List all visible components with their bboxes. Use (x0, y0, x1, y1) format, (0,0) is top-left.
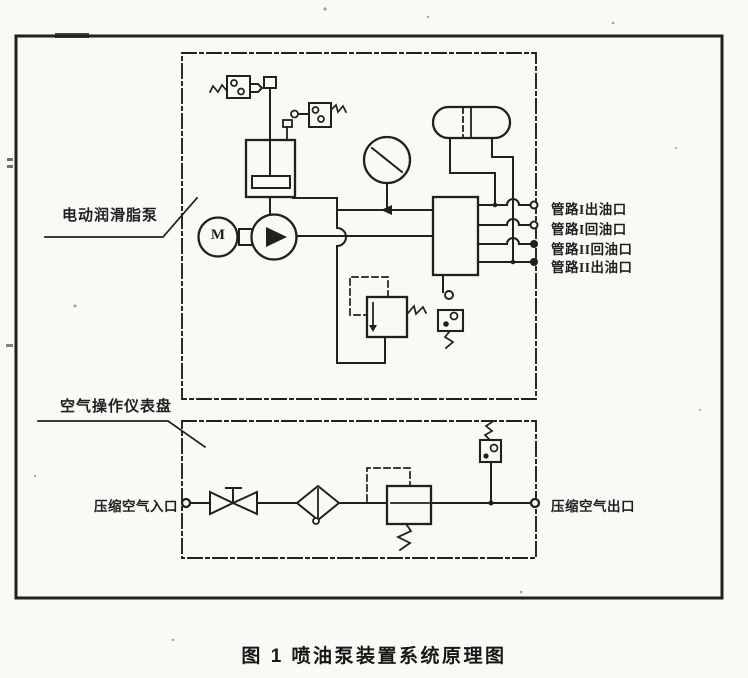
spring-icon (331, 105, 346, 112)
accumulator-line-left (450, 138, 495, 205)
shutoff-valve (210, 488, 257, 514)
port-label-line1-out: 管路I出油口 (551, 198, 627, 218)
air-outlet-port (531, 499, 539, 507)
air-inlet-label: 压缩空气入口 (90, 495, 178, 515)
scan-mark (55, 33, 89, 38)
pressure-gauge (364, 137, 410, 210)
air-panel-label: 空气操作仪表盘 (60, 395, 172, 416)
pipeline-port-lines (478, 199, 538, 266)
air-outlet-label: 压缩空气出口 (551, 495, 635, 515)
reservoir-flag (283, 120, 292, 140)
spring-icon (485, 422, 492, 440)
grease-pump-unit-label: 电动润滑脂泵 (62, 204, 158, 225)
port-circle-2 (531, 222, 538, 229)
schematic-linework (0, 0, 748, 678)
port-label-line2-out: 管路II出油口 (551, 256, 633, 276)
motor-letter: M (208, 227, 228, 244)
switch-plunger (250, 84, 262, 92)
pressure-switch-air (480, 422, 501, 462)
pressure-regulator (367, 468, 431, 550)
grease-pipe-lines (270, 197, 433, 363)
level-limit-switch-right (291, 103, 346, 127)
level-limit-switch-left (210, 76, 262, 98)
gear-pump-symbol (252, 215, 297, 260)
drain-port-symbol (445, 291, 453, 299)
air-panel-leader-line (38, 421, 205, 447)
air-inlet-port (182, 499, 190, 507)
relief-valve (350, 277, 426, 337)
port-label-line1-return: 管路I回油口 (551, 218, 627, 238)
roller-icon (291, 111, 298, 118)
motor-pump-coupling (239, 229, 252, 245)
pressure-switch-grease (438, 310, 463, 348)
port-circle-4 (530, 258, 538, 266)
distribution-valve-block (433, 197, 478, 299)
port-circle-1 (531, 202, 538, 209)
spring-icon (398, 524, 411, 550)
spring-icon (408, 306, 426, 314)
filter-drain (313, 518, 319, 524)
port-label-line2-return: 管路II回油口 (551, 238, 633, 258)
figure-schematic: 电动润滑脂泵 空气操作仪表盘 压缩空气入口 压缩空气出口 管路I出油口 管路I回… (0, 0, 748, 678)
air-filter (297, 486, 339, 524)
figure-caption: 图 1 喷油泵装置系统原理图 (0, 641, 748, 668)
spring-icon (445, 331, 453, 348)
port-circle-3 (530, 240, 538, 248)
spring-icon (210, 85, 227, 92)
